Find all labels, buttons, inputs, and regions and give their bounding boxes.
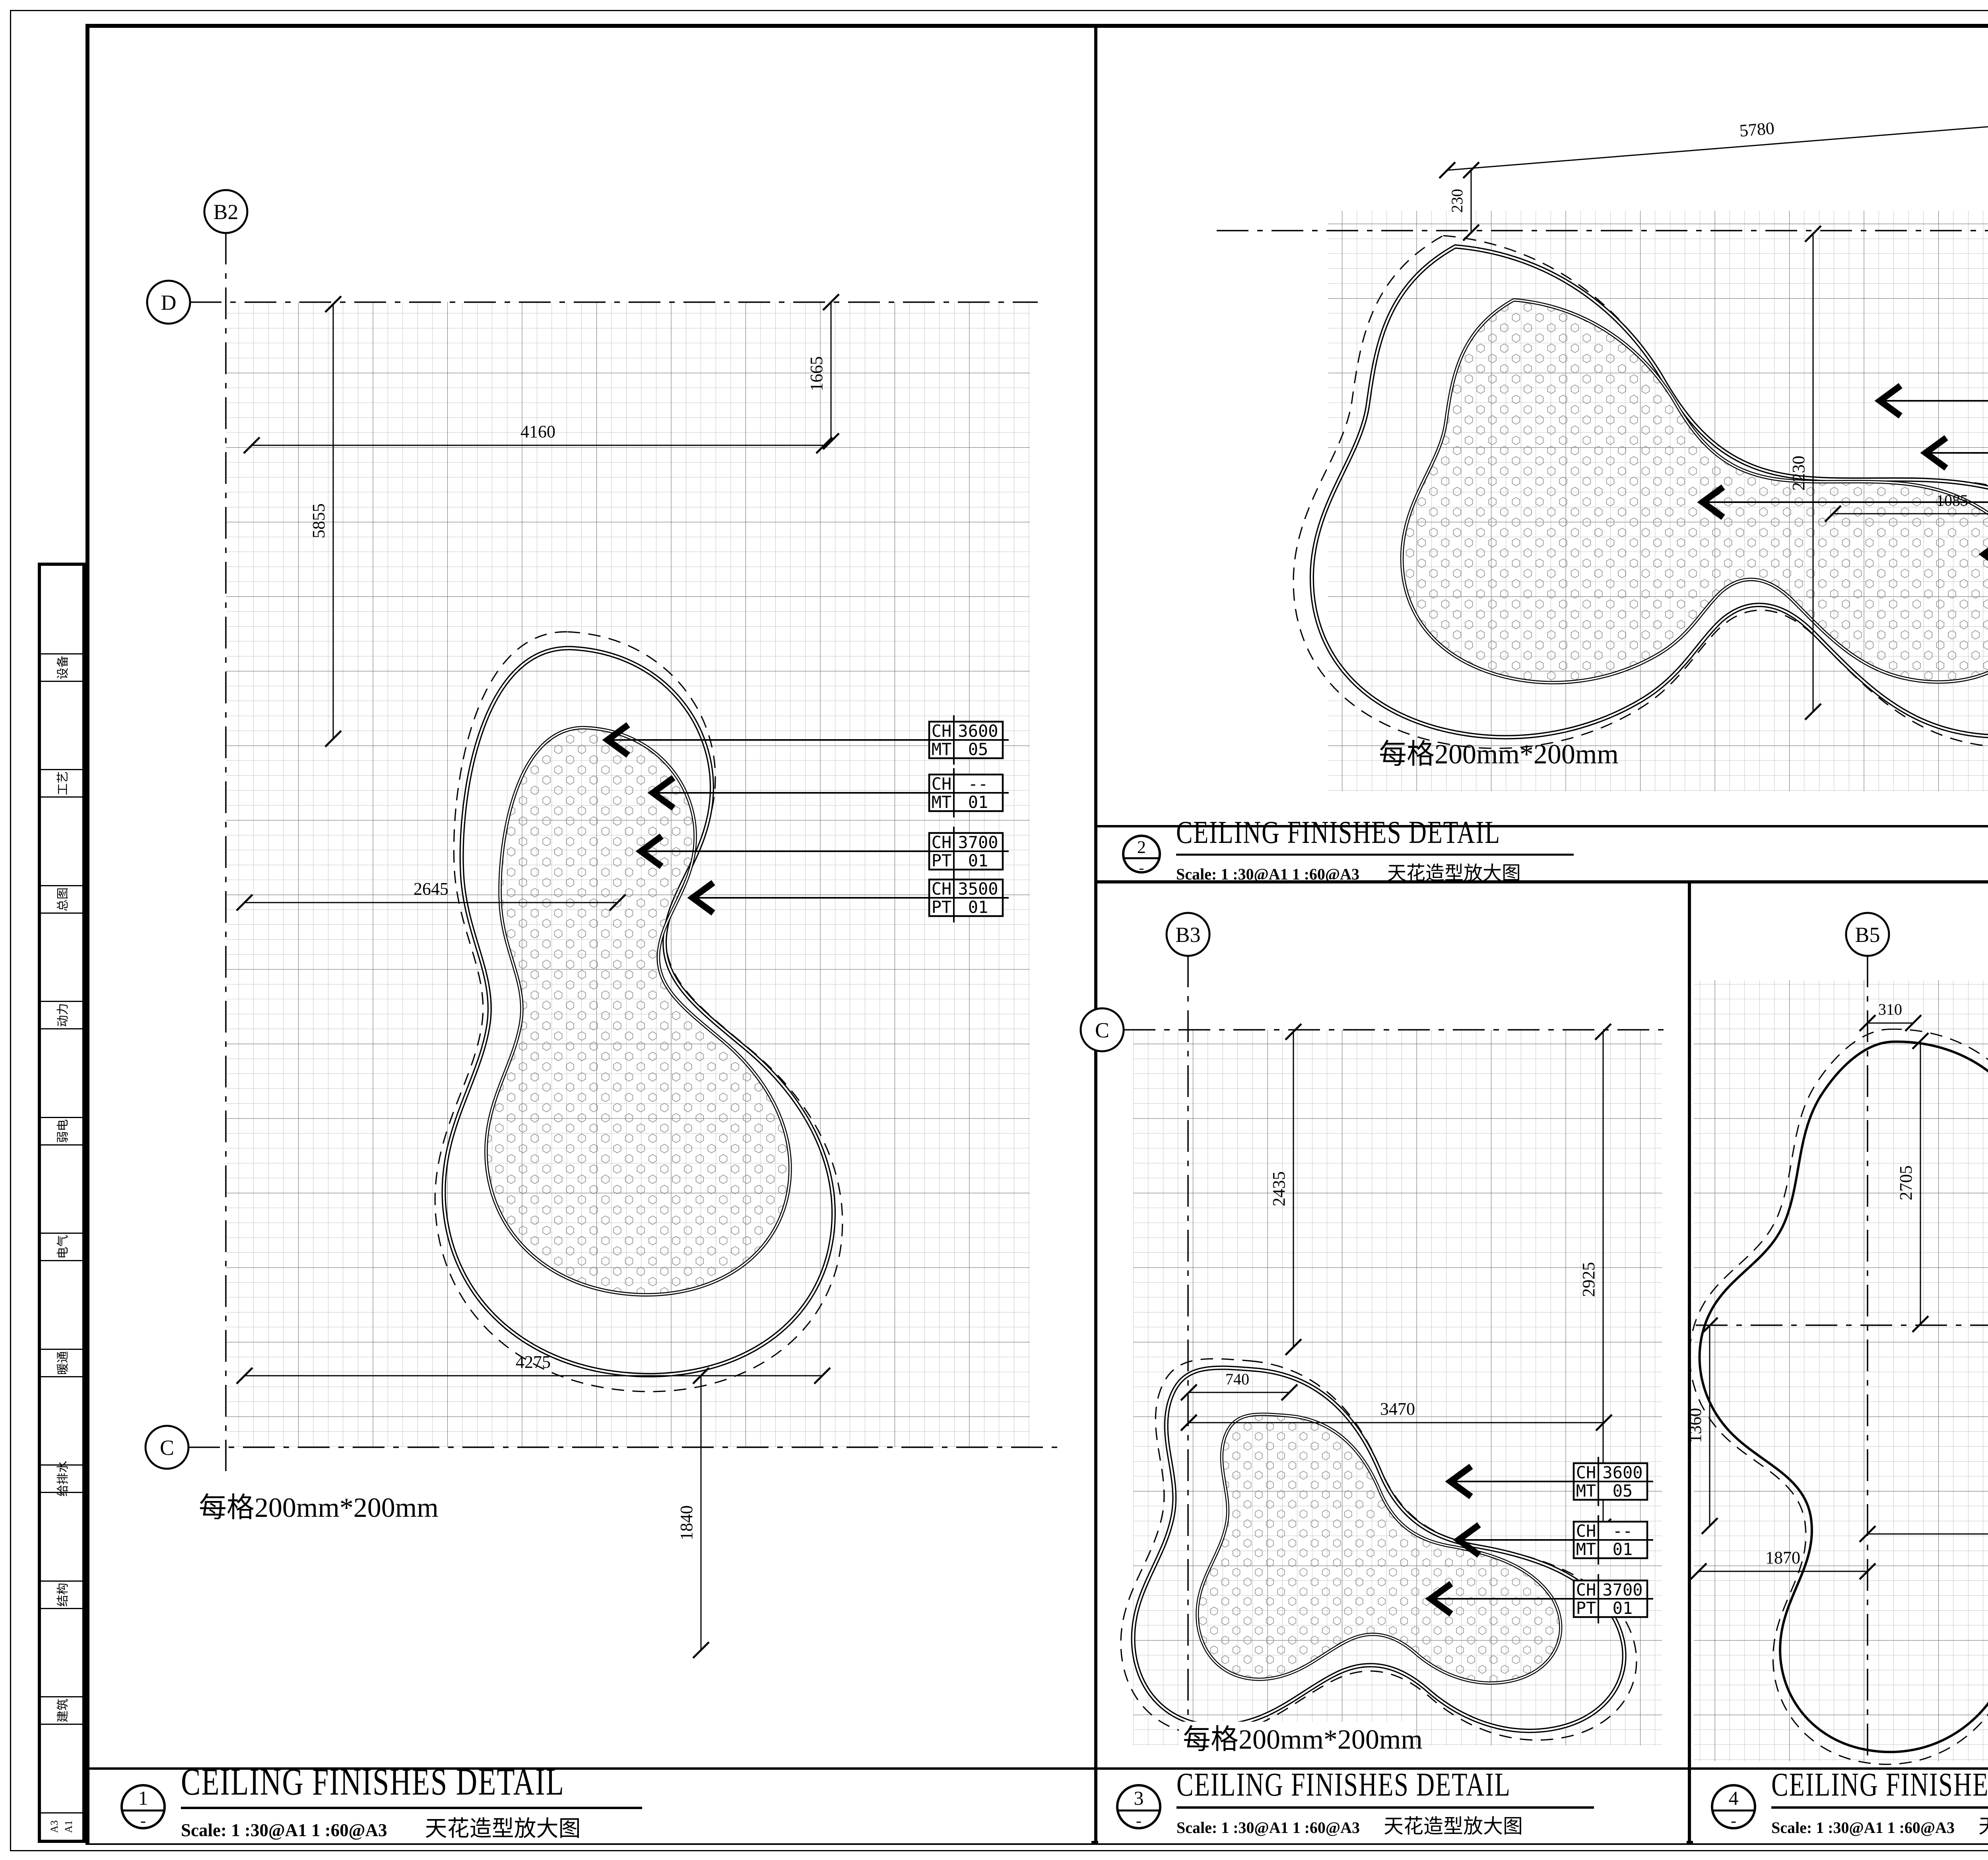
tag-value: 01 — [1613, 1540, 1633, 1559]
dim-text: 1665 — [807, 356, 826, 391]
detail-title-cn: 天花造型放大图 — [425, 1811, 581, 1843]
drawing-sheet: 设备 工艺 总图 动力 弱电 电气 暖通 给排水 结构 建筑 A3A1 — [0, 0, 1988, 1860]
panel-1-ceiling-detail: 4160 1665 5855 2645 4275 — [146, 190, 1058, 1658]
tag-value: 3700 — [1602, 1580, 1642, 1600]
panel-4-ceiling-detail: 310 2705 1360 860 3740 — [1685, 913, 1988, 1764]
dim-text: 4275 — [516, 1352, 551, 1372]
grid-bubble-label: D — [161, 291, 177, 315]
panel-2-ceiling-detail: 5780 230 2230 1085 CH — [1217, 46, 1988, 791]
detail-number-bubble: 2 - — [1122, 835, 1161, 874]
dim-text: 310 — [1878, 1000, 1902, 1018]
dim-text: 740 — [1225, 1370, 1249, 1388]
detail-scale: Scale: 1 :30@A1 1 :60@A3 — [1771, 1818, 1955, 1837]
tag-key: PT — [932, 897, 952, 917]
dim-text: 230 — [1448, 189, 1466, 213]
title-underline — [1176, 1806, 1594, 1809]
detail-number: 2 — [1124, 837, 1159, 859]
tag-value: 01 — [1613, 1598, 1633, 1618]
grid-bubble: B2 — [204, 190, 247, 233]
grid-bubble-label: B5 — [1855, 923, 1880, 947]
title-underline — [1771, 1806, 1988, 1809]
detail-sheet-ref: - — [1118, 1811, 1159, 1831]
detail-title-text: CEILING FINISHES DETAIL — [1176, 815, 1574, 851]
tag-value: 01 — [968, 792, 988, 812]
panel-3-ceiling-detail: 2435 2925 740 3470 CH — [1081, 913, 1668, 1755]
detail-number-bubble: 3 - — [1116, 1784, 1161, 1829]
detail-number: 4 — [1713, 1786, 1754, 1811]
dim-text: 2230 — [1789, 456, 1808, 491]
grid-bubble-label: B3 — [1175, 923, 1200, 947]
tag-key: CH — [1576, 1463, 1596, 1482]
detail-number-bubble: 4 - — [1711, 1784, 1756, 1829]
tag-value: 3600 — [1602, 1463, 1642, 1482]
dim-text: 2435 — [1269, 1171, 1289, 1206]
dim-text: 1840 — [677, 1505, 696, 1540]
detail-title-4: 4 - CEILING FINISHES DETAIL Scale: 1 :30… — [1693, 1770, 1988, 1843]
dim-text: 1870 — [1765, 1548, 1800, 1567]
tag-key: CH — [932, 833, 952, 852]
dim-text: 2645 — [414, 879, 448, 899]
grid-bubble-label: C — [1095, 1018, 1109, 1042]
tag-value: 3500 — [958, 879, 998, 899]
title-underline — [1176, 854, 1574, 856]
detail-title-1: 1 - CEILING FINISHES DETAIL Scale: 1 :30… — [89, 1770, 1091, 1843]
detail-number: 3 — [1118, 1786, 1159, 1811]
tag-value: 05 — [968, 740, 988, 759]
title-underline — [181, 1807, 642, 1809]
dim-text: 1085 — [1936, 491, 1968, 509]
tag-value: 3600 — [958, 721, 998, 741]
tag-value: -- — [1613, 1521, 1633, 1541]
tag-key: CH — [1576, 1580, 1596, 1600]
dim-text: 4160 — [520, 422, 555, 441]
tag-value: 01 — [968, 851, 988, 870]
detail-title-3: 3 - CEILING FINISHES DETAIL Scale: 1 :30… — [1098, 1770, 1687, 1843]
detail-title-text: CEILING FINISHES DETAIL — [181, 1760, 642, 1804]
dim-text: 2925 — [1579, 1262, 1598, 1297]
detail-scale: Scale: 1 :30@A1 1 :60@A3 — [1176, 1818, 1360, 1837]
dimension: 5780 — [1439, 112, 1988, 178]
tag-key: CH — [1576, 1521, 1596, 1541]
tag-key: MT — [932, 792, 952, 812]
tag-key: PT — [1576, 1598, 1596, 1618]
grid-bubble: C — [1081, 1008, 1124, 1051]
tag-key: MT — [1576, 1481, 1596, 1501]
detail-title-text: CEILING FINISHES DETAIL — [1176, 1765, 1594, 1804]
grid-bubble-label: B2 — [213, 200, 238, 224]
grid-note: 每格200mm*200mm — [1379, 739, 1619, 770]
detail-sheet-ref: - — [123, 1811, 163, 1831]
dim-text: 5780 — [1739, 118, 1775, 141]
grid-bubble: B3 — [1167, 913, 1209, 956]
tag-value: -- — [968, 774, 988, 794]
detail-number: 1 — [123, 1786, 163, 1811]
tag-key: PT — [932, 851, 952, 870]
grid-bubble: C — [146, 1426, 188, 1469]
detail-title-text: CEILING FINISHES DETAIL — [1771, 1765, 1988, 1804]
detail-sheet-ref: - — [1124, 859, 1159, 877]
grid-note: 每格200mm*200mm — [199, 1493, 439, 1523]
grid-bubble: B5 — [1846, 913, 1889, 956]
detail-scale: Scale: 1 :30@A1 1 :60@A3 — [1176, 865, 1359, 883]
detail-title-cn: 天花造型放大图 — [1387, 857, 1521, 885]
detail-scale: Scale: 1 :30@A1 1 :60@A3 — [181, 1820, 387, 1841]
dim-text: 3470 — [1380, 1399, 1415, 1419]
tag-key: MT — [1576, 1540, 1596, 1559]
detail-title-2: 2 - CEILING FINISHES DETAIL Scale: 1 :30… — [1098, 828, 1988, 880]
grid-bubble: D — [147, 281, 190, 324]
tag-key: CH — [932, 774, 952, 794]
detail-number-bubble: 1 - — [120, 1784, 166, 1829]
dim-text: 1360 — [1685, 1408, 1705, 1443]
tag-value: 3700 — [958, 833, 998, 852]
detail-title-cn: 天花造型放大图 — [1978, 1810, 1988, 1839]
tag-key: CH — [932, 879, 952, 899]
detail-sheet-ref: - — [1713, 1811, 1754, 1831]
tag-value: 01 — [968, 897, 988, 917]
dim-text: 5855 — [309, 503, 328, 538]
dim-text: 2705 — [1896, 1165, 1916, 1200]
tag-value: 05 — [1613, 1481, 1633, 1501]
tag-key: MT — [932, 740, 952, 759]
tag-key: CH — [932, 721, 952, 741]
detail-title-cn: 天花造型放大图 — [1384, 1810, 1523, 1839]
ceiling-detail-drawings: 4160 1665 5855 2645 4275 — [0, 0, 1988, 1860]
grid-bubble-label: C — [160, 1436, 174, 1460]
grid-note: 每格200mm*200mm — [1183, 1724, 1423, 1755]
